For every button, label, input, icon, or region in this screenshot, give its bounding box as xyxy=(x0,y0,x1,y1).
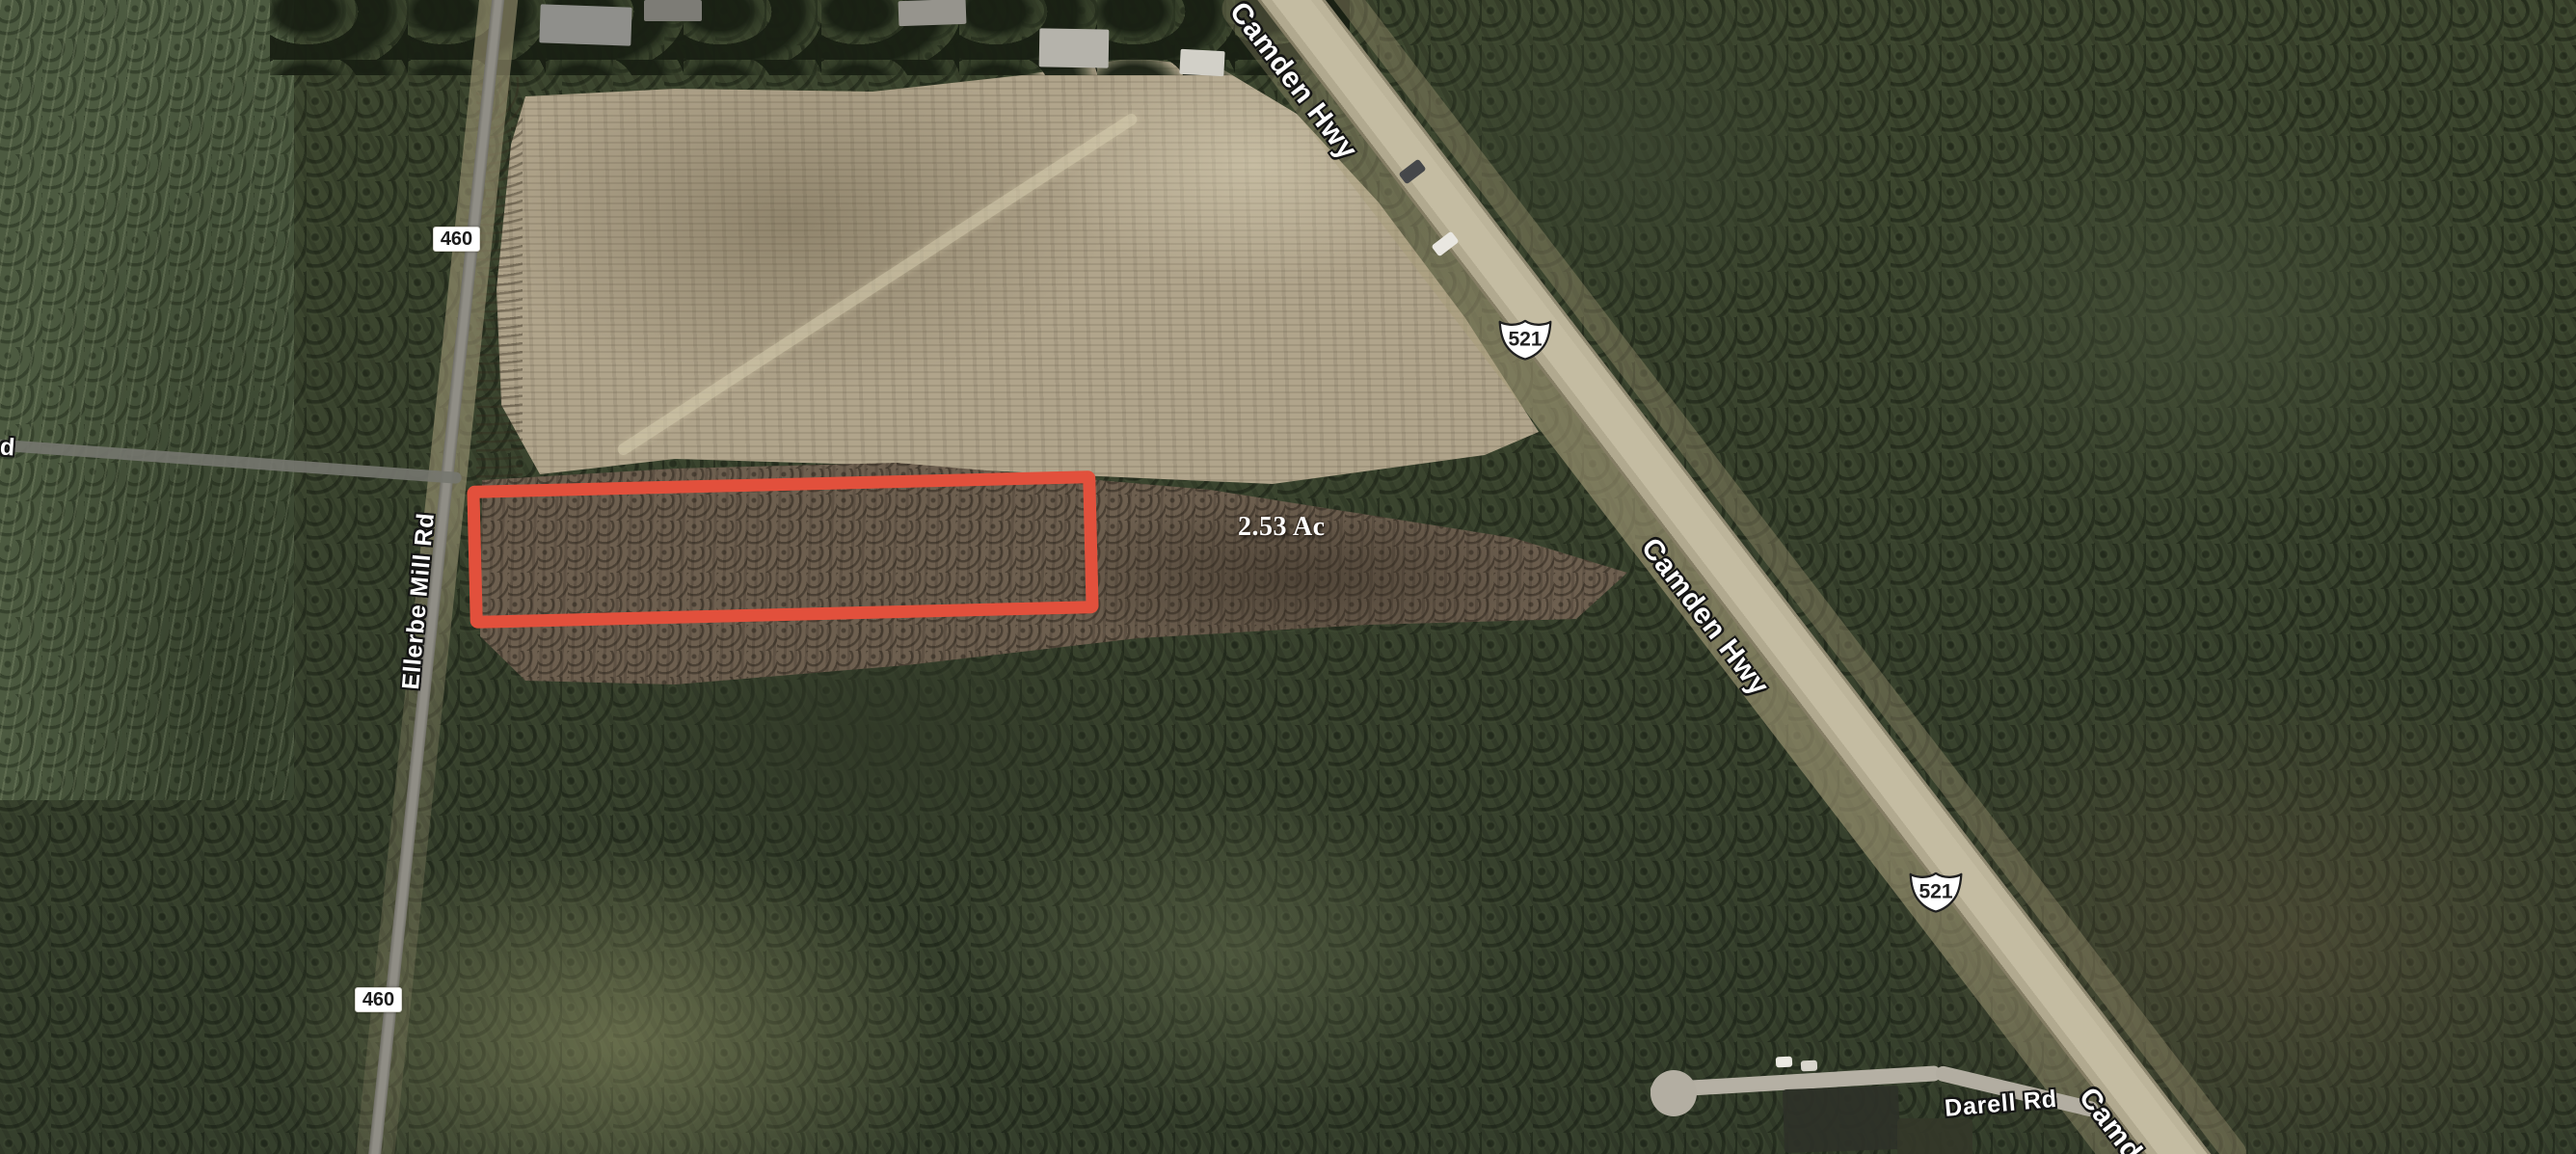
pine-plantation xyxy=(0,0,294,800)
building-roof xyxy=(1039,28,1110,67)
building-roof xyxy=(1897,1118,1972,1154)
route-number: 521 xyxy=(1508,329,1542,351)
route-460-badge-north: 460 xyxy=(433,227,480,252)
building-roof xyxy=(1783,1086,1900,1153)
satellite-map[interactable]: Camden Hwy Camden Hwy Camden Hwy Ellerbe… xyxy=(0,0,2576,1154)
us-route-shield-icon: 521 xyxy=(1908,871,1964,913)
building-roof xyxy=(1179,49,1224,76)
building-roof xyxy=(644,0,702,21)
field-track xyxy=(615,112,1139,458)
car xyxy=(1776,1057,1793,1068)
building-roof xyxy=(899,0,967,26)
road-label-fragment: d xyxy=(0,433,16,462)
route-number: 521 xyxy=(1919,881,1952,903)
us-route-shield-icon: 521 xyxy=(1497,318,1553,361)
car xyxy=(1801,1060,1818,1072)
cul-de-sac xyxy=(1650,1070,1697,1116)
route-460-badge-south: 460 xyxy=(355,987,402,1012)
us-route-521-shield-north: 521 xyxy=(1497,318,1553,361)
parcel-outline xyxy=(467,470,1098,629)
building-roof xyxy=(539,4,631,45)
us-route-521-shield-south: 521 xyxy=(1908,871,1964,913)
parcel-acreage-label: 2.53 Ac xyxy=(1238,512,1326,543)
